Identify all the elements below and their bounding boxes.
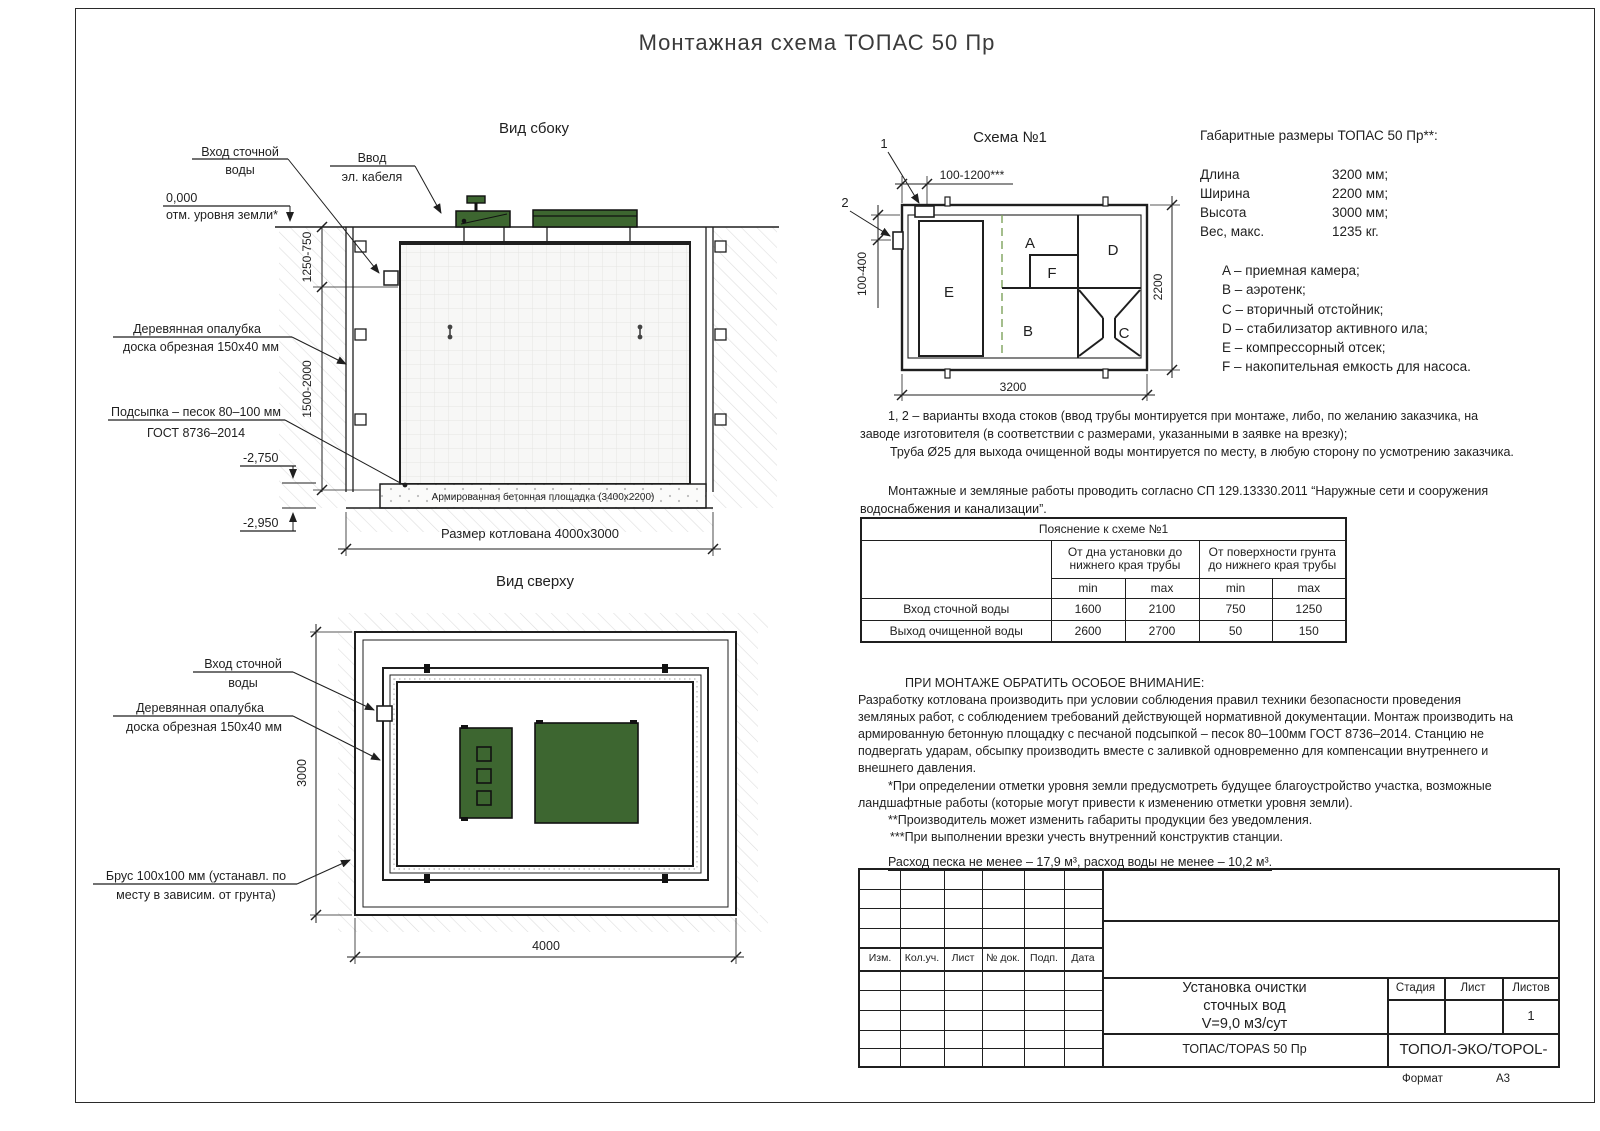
room-d: D	[1108, 242, 1119, 259]
footnote-line: *При определении отметки уровня земли пр…	[888, 779, 1492, 793]
document-title-l2: сточных вод	[1102, 997, 1387, 1015]
sheets-header: Листов	[1502, 977, 1560, 999]
col-header-min: min	[1199, 578, 1272, 598]
top-view-title: Вид сверху	[496, 573, 575, 590]
dim-3000: 3000	[295, 759, 309, 787]
drawing-sheet: Монтажная схема ТОПАС 50 Пр Вид сбоку	[0, 0, 1600, 1131]
attention-line: Разработку котлована производить при усл…	[858, 693, 1461, 707]
room-f: F	[1047, 265, 1056, 282]
note-line: водоснабжения и канализации”.	[860, 502, 1047, 516]
dim-2200: 2200	[1151, 273, 1165, 300]
cable-callout-l2: эл. кабеля	[342, 170, 403, 184]
table-row: Вход сточной воды 1600 2100 750 1250	[861, 598, 1346, 620]
vent-cap	[467, 196, 485, 203]
gabarit-label: Вес, макс.	[1200, 224, 1332, 239]
dim-100-400: 100-400	[855, 252, 869, 296]
stamp-col-koluch: Кол.уч.	[900, 947, 944, 970]
note-line: заводе изготовителя (в соответствии с ра…	[860, 427, 1347, 441]
cell-value: 50	[1199, 620, 1272, 642]
gabarit-label: Длина	[1200, 167, 1332, 182]
gabarit-row: Ширина2200 мм;	[1200, 186, 1388, 201]
inlet-variant-1	[915, 206, 934, 217]
explanation-table: Пояснение к схеме №1 От дна установки до…	[860, 517, 1347, 643]
cell-value: 2100	[1125, 598, 1199, 620]
pit-size-label: Размер котлована 4000х3000	[441, 526, 619, 541]
dim-3200: 3200	[1000, 380, 1027, 394]
schema-title: Схема №1	[973, 129, 1047, 146]
inlet-callout-l1: Вход сточной	[201, 145, 279, 159]
table-group-header: От поверхности грунта до нижнего края тр…	[1199, 540, 1346, 578]
gabarit-row: Вес, макс.1235 кг.	[1200, 224, 1379, 239]
lid-necks	[464, 227, 630, 242]
formwork-callout-l2: доска обрезная 150х40 мм	[123, 340, 279, 354]
col-header-max: max	[1125, 578, 1199, 598]
footnote-line: ***При выполнении врезки учесть внутренн…	[890, 830, 1283, 844]
attention-line: внешнего давления.	[858, 761, 976, 775]
table-title: Пояснение к схеме №1	[861, 518, 1346, 540]
formwork-top-callout-l2: доска обрезная 150х40 мм	[126, 720, 282, 734]
beam-callout-l1: Брус 100х100 мм (устанавл. по	[106, 869, 286, 883]
side-view: Вид сбоку	[108, 120, 779, 556]
row-label: Выход очищенной воды	[861, 620, 1051, 642]
stamp-col-izm: Изм.	[860, 947, 900, 970]
room-c: C	[1119, 325, 1130, 342]
footnote-line: ландшафтные работы (которые могут привес…	[858, 796, 1353, 810]
col-header-max: max	[1272, 578, 1346, 598]
product-name: ТОПАС/TOPAS 50 Пр	[1102, 1033, 1387, 1066]
formwork-callout-l1: Деревянная опалубка	[133, 322, 261, 336]
table-row: Выход очищенной воды 2600 2700 50 150	[861, 620, 1346, 642]
sheet-header: Лист	[1444, 977, 1502, 999]
legend-item: A – приемная камера;	[1222, 261, 1471, 280]
legend-item: D – стабилизатор активного ила;	[1222, 319, 1471, 338]
note-line: Монтажные и земляные работы проводить со…	[888, 484, 1488, 498]
format-label: Формат	[1402, 1073, 1443, 1085]
level-2950-label: -2,950	[243, 516, 278, 530]
gabarit-value: 3000 мм;	[1332, 205, 1388, 220]
bedding-callout-l2: ГОСТ 8736–2014	[147, 426, 245, 440]
stamp-col-podp: Подп.	[1024, 947, 1064, 970]
note-line: 1, 2 – варианты входа стоков (ввод трубы…	[888, 409, 1478, 423]
title-block: Изм. Кол.уч. Лист № док. Подп. Дата Уста…	[858, 868, 1560, 1068]
table-corner-cell	[861, 540, 1051, 598]
left-lid	[456, 196, 510, 227]
dim-100-1200: 100-1200***	[940, 168, 1005, 182]
cell-value: 1600	[1051, 598, 1125, 620]
stage-header: Стадия	[1387, 977, 1444, 999]
document-title: Установка очистки сточных вод V=9,0 м3/с…	[1102, 979, 1387, 1033]
station-tank-body	[400, 242, 690, 484]
beam-callout-l2: месту в зависим. от грунта)	[116, 888, 276, 902]
schema-1: Схема №1 A	[841, 129, 1180, 401]
dim-4000: 4000	[532, 939, 560, 953]
attention-line: подвергать ударам, обсыпку производить в…	[858, 744, 1488, 758]
row-label: Вход сточной воды	[861, 598, 1051, 620]
dim-1500-2000: 1500-2000	[300, 360, 314, 418]
formwork-top-callout-l1: Деревянная опалубка	[136, 701, 264, 715]
gabarit-label: Ширина	[1200, 186, 1332, 201]
cable-callout-l1: Ввод	[358, 151, 388, 165]
side-view-title: Вид сбоку	[499, 120, 569, 137]
right-lid	[533, 210, 637, 227]
table-group-header: От дна установки до нижнего края трубы	[1051, 540, 1199, 578]
stamp-col-ndok: № док.	[982, 947, 1024, 970]
compartment-legend: A – приемная камера; B – аэротенк; C – в…	[1222, 261, 1471, 377]
compressor-lid-top	[460, 725, 512, 821]
slab-label: Армированная бетонная площадка (3400х220…	[432, 491, 655, 503]
top-view: Вид сверху	[93, 573, 768, 964]
legend-item: B – аэротенк;	[1222, 280, 1471, 299]
gabarit-label: Высота	[1200, 205, 1332, 220]
legend-item: C – вторичный отстойник;	[1222, 300, 1471, 319]
gabarit-value: 3200 мм;	[1332, 167, 1388, 182]
document-title-l1: Установка очистки	[1102, 979, 1387, 997]
attention-line: земляных работ, с соблюдением требований…	[858, 710, 1513, 724]
inlet-variant-2	[893, 232, 903, 249]
format-value: А3	[1496, 1073, 1510, 1085]
stamp-col-list: Лист	[944, 947, 982, 970]
bedding-callout-l1: Подсыпка – песок 80–100 мм	[111, 405, 281, 419]
main-lid-top	[535, 720, 638, 823]
soil-hatch-right	[713, 227, 777, 508]
inlet-opening-top	[377, 706, 392, 721]
inlet-top-callout-l1: Вход сточной	[204, 657, 282, 671]
inlet-callout-l2: воды	[225, 163, 254, 177]
room-e: E	[944, 284, 954, 301]
gabarit-row: Высота3000 мм;	[1200, 205, 1388, 220]
room-b: B	[1023, 323, 1033, 340]
stamp-col-data: Дата	[1064, 947, 1102, 970]
marker-1: 1	[880, 136, 887, 151]
legend-item: E – компрессорный отсек;	[1222, 338, 1471, 357]
company-name: ТОПОЛ-ЭКО/TOPOL-ECO	[1387, 1033, 1560, 1066]
document-title-l3: V=9,0 м3/сут	[1102, 1015, 1387, 1033]
cell-value: 150	[1272, 620, 1346, 642]
gabarit-value: 1235 кг.	[1332, 224, 1379, 239]
col-header-min: min	[1051, 578, 1125, 598]
zero-level-value: 0,000	[166, 191, 197, 205]
top-callouts: Вход сточной воды Деревянная опалубка до…	[93, 657, 380, 902]
attention-heading: ПРИ МОНТАЖЕ ОБРАТИТЬ ОСОБОЕ ВНИМАНИЕ:	[905, 676, 1204, 690]
legend-item: F – накопительная емкость для насоса.	[1222, 357, 1471, 376]
sheets-value: 1	[1502, 999, 1560, 1033]
gabarits-title: Габаритные размеры ТОПАС 50 Пр**:	[1200, 128, 1438, 143]
zero-level-label: отм. уровня земли*	[166, 208, 278, 222]
note-line: Труба Ø25 для выхода очищенной воды монт…	[890, 445, 1514, 459]
level-2750-label: -2,750	[243, 451, 278, 465]
attention-line: армированную бетонную площадку с песчано…	[858, 727, 1484, 741]
cell-value: 1250	[1272, 598, 1346, 620]
cell-value: 750	[1199, 598, 1272, 620]
marker-2: 2	[841, 195, 848, 210]
cell-value: 2600	[1051, 620, 1125, 642]
dim-1250-750: 1250-750	[300, 231, 314, 282]
cell-value: 2700	[1125, 620, 1199, 642]
inlet-opening	[384, 271, 398, 285]
gabarit-value: 2200 мм;	[1332, 186, 1388, 201]
side-callouts: Вход сточной воды Ввод эл. кабеля Деревя…	[108, 145, 441, 487]
inlet-top-callout-l2: воды	[228, 676, 257, 690]
gabarit-row: Длина3200 мм;	[1200, 167, 1388, 182]
room-a: A	[1025, 235, 1035, 252]
footnote-line: **Производитель может изменить габариты …	[888, 813, 1312, 827]
